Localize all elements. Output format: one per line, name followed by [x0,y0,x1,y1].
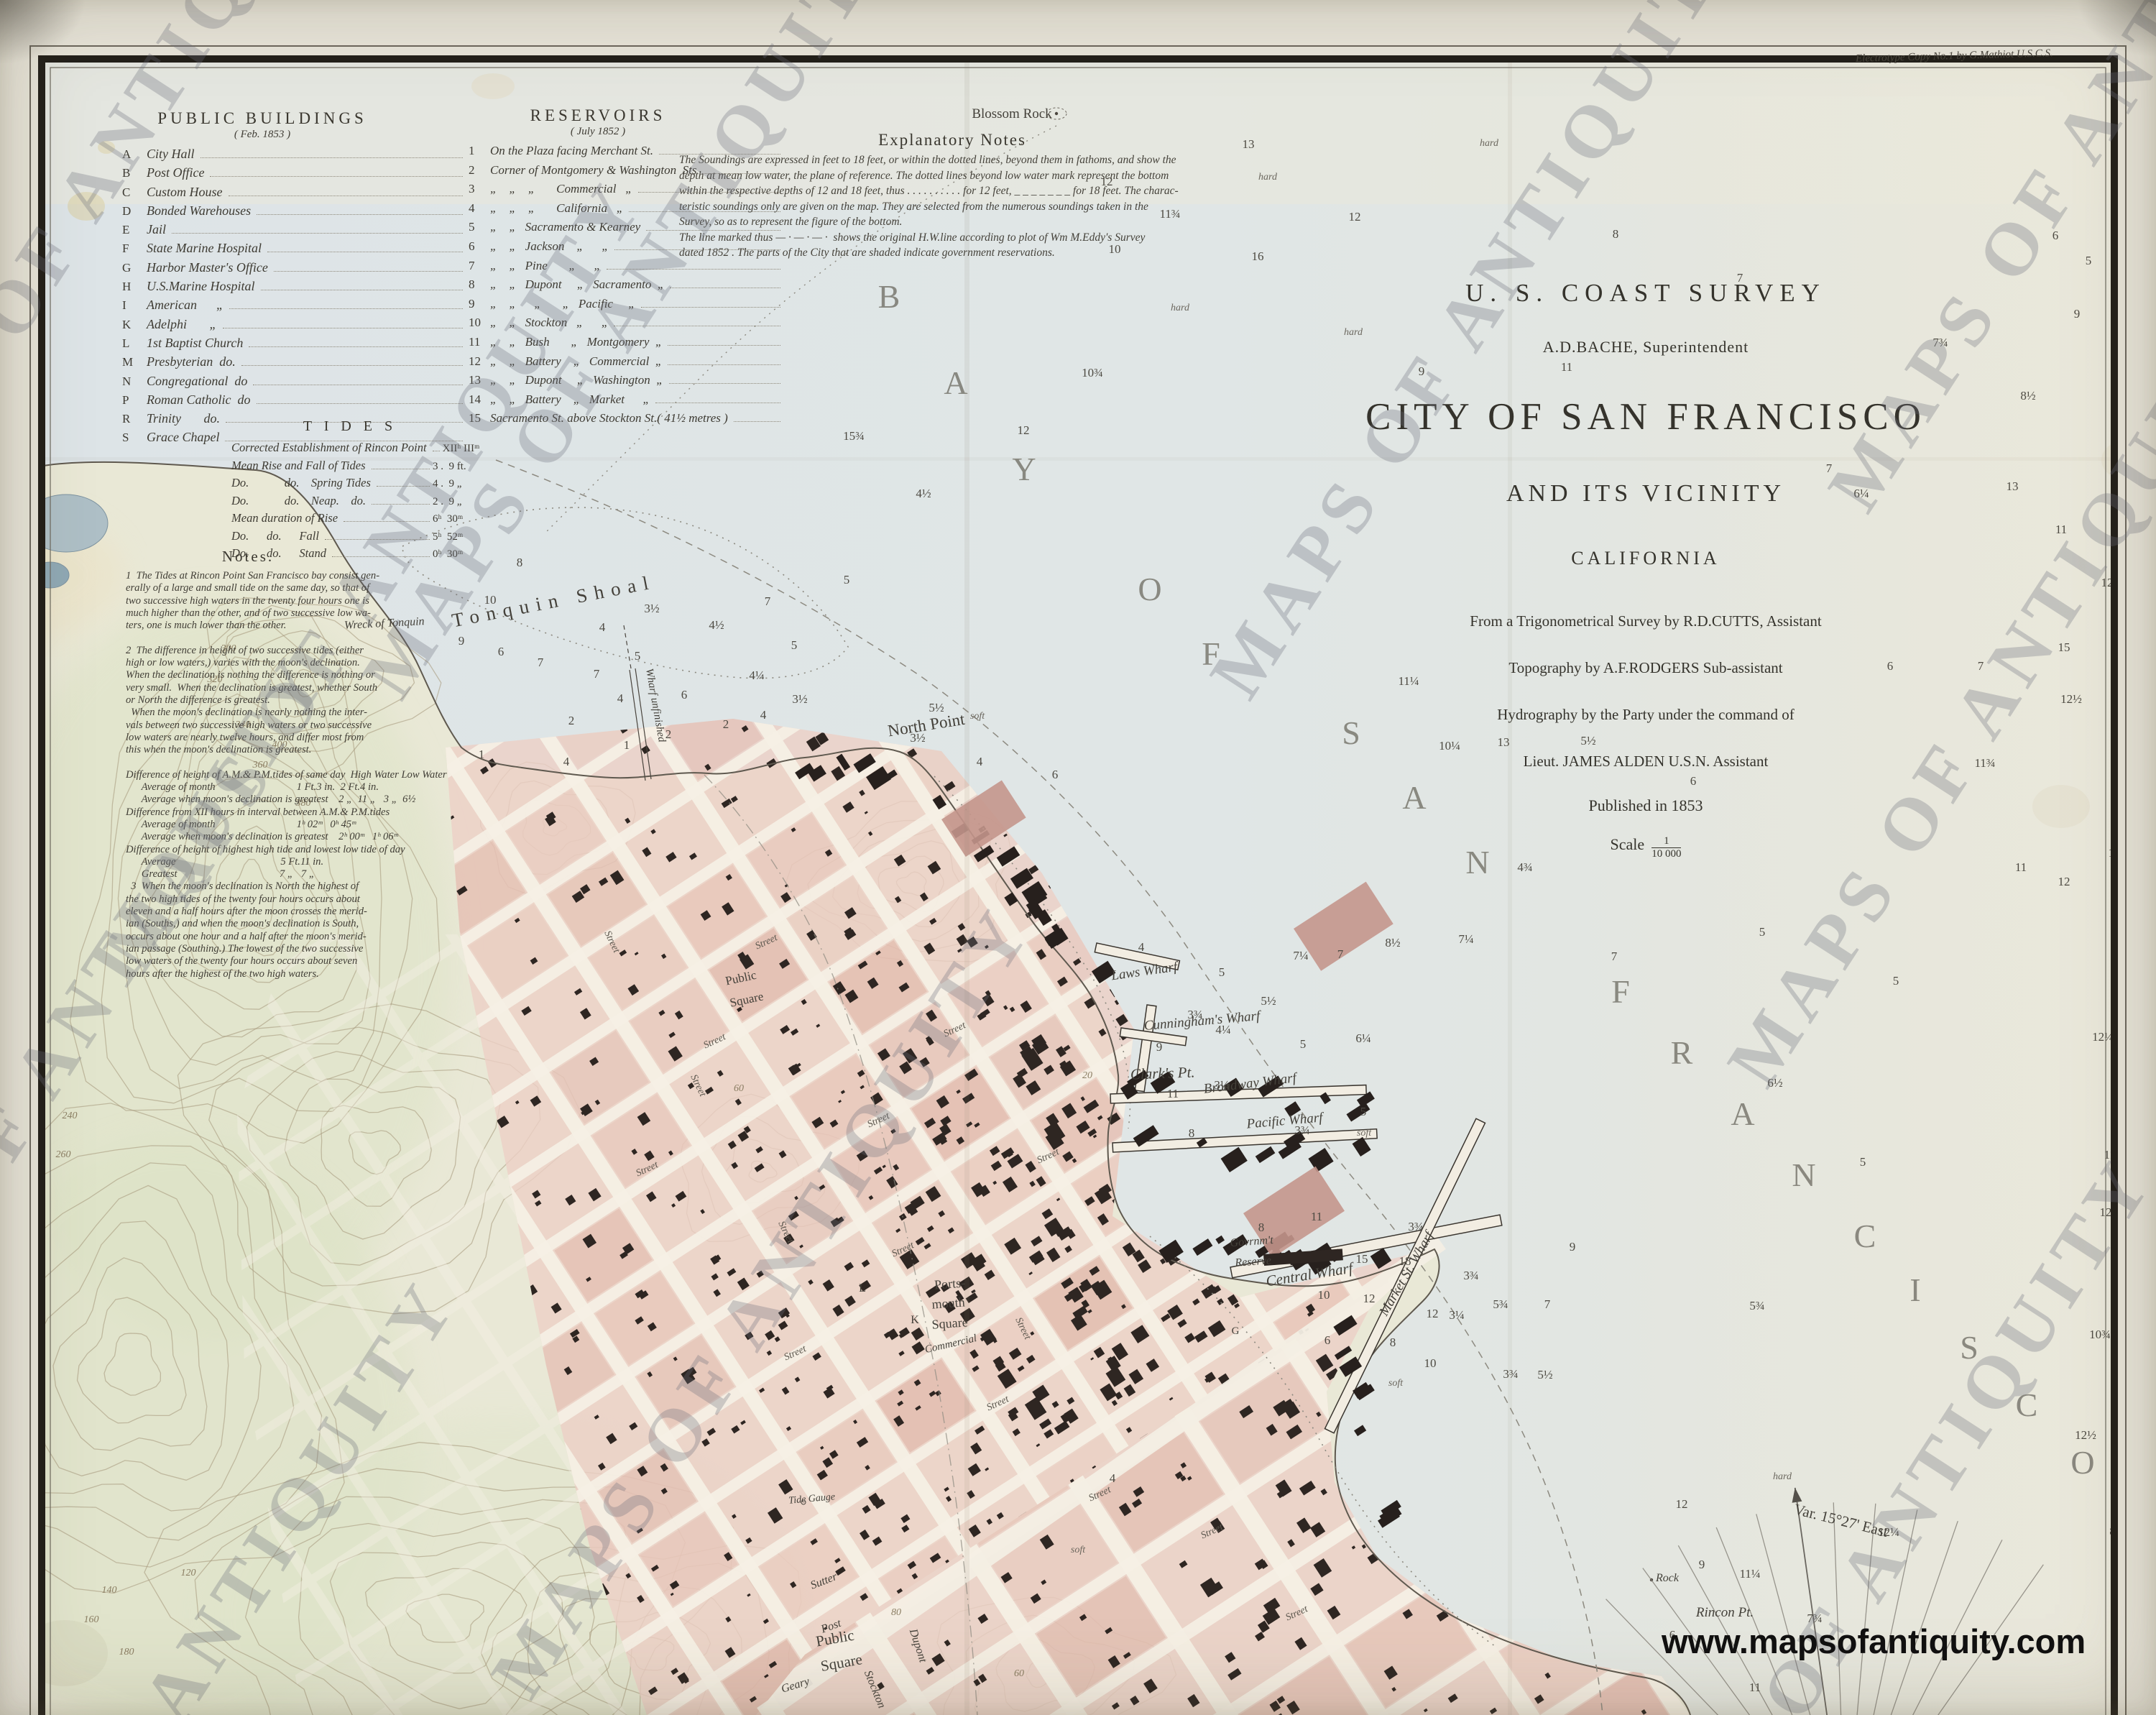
legend-text [377,486,430,487]
legend-text: City Hall [147,147,195,162]
legend-text [668,345,780,346]
legend-text: „ „ „ California „ [490,201,623,216]
legend-row: CCustom House [122,185,466,203]
legend-row: L1st Baptist Church [122,336,466,354]
sounding: 12 [1363,1292,1376,1305]
legend-text: Presbyterian do. [147,354,236,369]
sounding: 5 [2086,254,2092,267]
bay-letter: C [1854,1218,1876,1254]
sounding: 4¼ [749,668,765,682]
sounding: 7 [765,594,771,608]
legend-key: I [122,298,147,313]
legend-text: 6ʰ 30ᵐ [433,513,519,525]
published-line: Published in 1853 [1322,796,1969,815]
legend-row: GHarbor Master's Office [122,260,466,279]
place-label: Blossom Rock [972,106,1052,121]
legend-text: Post Office [147,165,204,180]
bay-letter: C [2016,1387,2038,1423]
legend-text: Trinity do. [147,411,220,426]
legend-key: G [122,261,147,275]
text-line: or North the difference is greatest. [126,694,499,707]
sounding: 11 [1311,1210,1322,1223]
legend-row: 9„ „ „ „ Pacific „ [469,297,783,316]
sounding: 6 [2053,229,2059,242]
legend-text: Congregational do [147,374,247,389]
legend-key: L [122,336,147,351]
legend-text [344,521,430,522]
legend-text [257,403,464,404]
legend-key: 7 [469,259,490,273]
legend-text [223,328,464,328]
sounding: 5¾ [1493,1297,1508,1311]
bay-letter: F [1611,973,1630,1010]
text-line: hours after the highest of the two high … [126,968,499,980]
legend-row: 11„ „ Bush „ Montgomery „ [469,335,783,354]
bay-letter: A [944,364,967,401]
legend-row: Do. do. Neap. do.2 . 9 „ [231,494,519,512]
sounding: 11 [2015,860,2027,874]
public-buildings-panel: PUBLIC BUILDINGS ( Feb. 1853 ) ACity Hal… [122,109,466,449]
reservoirs-date: ( July 1852 ) [490,126,706,138]
sounding: 5 [1360,1105,1367,1118]
sounding: 5 [1860,1155,1866,1169]
legend-text [614,326,780,326]
text-line: 3 When the moon's declination is North t… [126,881,499,893]
legend-row: 12„ „ Battery „ Commercial „ [469,354,783,374]
sounding: 12 [1676,1497,1688,1511]
legend-text: Roman Catholic do [147,392,251,408]
legend-text [372,469,430,469]
legend-text [229,196,463,196]
sounding: 11 [1749,1680,1761,1694]
legend-row: 10„ „ Stockton „ „ [469,316,783,335]
text-line: within the respective depths of 12 and 1… [679,183,1326,199]
legend-row: FState Marine Hospital [122,241,466,259]
scale-line: Scale110 000 [1322,835,1969,860]
bay-letter: Y [1012,451,1036,487]
legend-row: MPresbyterian do. [122,354,466,373]
sounding: 3½ [792,692,808,706]
legend-text: „ „ Battery „ Market „ [490,392,650,407]
contour-elevation: 140 [102,1585,117,1596]
legend-text: Corrected Establishment of Rincon Point [231,441,427,455]
legend-text: 3 . 9 ft. [433,461,519,473]
bay-letter: I [1909,1272,1920,1308]
state-line: CALIFORNIA [1322,548,1969,569]
legend-text [655,403,780,403]
contour-elevation: 20 [1082,1070,1092,1081]
legend-text [261,290,464,290]
notes-text: 1 The Tides at Rincon Point San Francisc… [126,570,499,980]
sounding: 4½ [709,618,724,632]
tides-panel: T I D E S Corrected Establishment of Rin… [231,418,519,564]
legend-text: „ „ „ Commercial „ [490,182,632,196]
text-line: The line marked thus — · — · — · shows t… [679,230,1326,246]
sounding: 8 [1613,227,1619,241]
bottom-character-label: soft [1071,1545,1086,1555]
sounding: 7¼ [1458,932,1474,946]
legend-text [274,271,463,272]
sounding: 8 [1189,1126,1195,1140]
text-line: low waters are nearly twelve hours, and … [126,732,499,744]
sounding: 5¾ [1749,1299,1764,1312]
credit-alden: Lieut. JAMES ALDEN U.S.N. Assistant [1322,753,1969,771]
legend-key: H [122,280,147,294]
legend-row: IAmerican „ [122,298,466,316]
sounding: 10 [1424,1356,1437,1370]
contour-elevation: 180 [119,1647,134,1657]
legend-key: K [122,318,147,332]
bottom-character-label: hard [1773,1471,1792,1482]
legend-row: Corrected Establishment of Rincon PointX… [231,441,519,459]
legend-key: A [122,147,147,162]
sounding: 2 [568,714,575,727]
legend-text: Do. do. Spring Tides [231,476,371,490]
legend-text [734,421,780,422]
text-line: Difference from XII hours in interval be… [126,806,499,819]
text-line: Greatest 7 „ 7 „ [126,868,499,881]
legend-key: R [122,412,147,426]
place-label: L [859,1282,866,1295]
bay-letter: B [878,278,900,315]
sounding: 12¼ [2092,1030,2114,1044]
place-label: Rincon Pt. [1695,1605,1754,1620]
public-buildings-list: ACity HallBPost OfficeCCustom HouseDBond… [122,147,466,449]
legend-text: Jail [147,222,166,237]
text-line: ian passage (Southing.) The lowest of th… [126,943,499,955]
text-line: Average of month 1ʰ 02ᵐ 0ʰ 45ᵐ [126,819,499,831]
sounding: 8½ [2020,389,2036,403]
sounding: 5 [1219,965,1225,979]
bay-letter: R [1671,1034,1693,1071]
bottom-character-label: soft [970,711,985,722]
legend-row: DBonded Warehouses [122,203,466,222]
legend-row: 7„ „ Pine „ „ [469,259,783,278]
sounding: 7 [1978,659,1984,673]
legend-row: HU.S.Marine Hospital [122,279,466,298]
legend-row: BPost Office [122,165,466,184]
place-label: Square [931,1315,968,1331]
legend-text: Mean duration of Rise [231,511,338,525]
sounding: 3½ [644,602,660,615]
legend-text: „ „ Pine „ „ [490,259,601,273]
legend-key: B [122,166,147,180]
text-line: Difference of height of A.M.& P.M.tides … [126,769,499,781]
sounding: 11 [2055,523,2067,536]
superintendent-line: A.D.BACHE, Superintendent [1322,338,1969,357]
bay-letter: A [1731,1095,1754,1132]
public-buildings-title: PUBLIC BUILDINGS [144,109,381,128]
text-line [126,632,499,644]
explanatory-notes-panel: Explanatory Notes The Soundings are expr… [679,131,1326,261]
legend-text: 5ʰ 52ᵐ [433,531,519,543]
legend-key: 12 [469,354,490,369]
legend-text: American „ [147,298,224,313]
legend-text: 4 . 9 „ [433,478,519,490]
sounding: 4½ [916,487,931,500]
legend-text: Do. do. Fall [231,529,319,543]
legend-text [267,252,463,252]
sounding: 6½ [1767,1076,1783,1090]
legend-row: 14„ „ Battery „ Market „ [469,392,783,412]
legend-key: 3 [469,182,490,196]
sounding: 9 [2074,307,2081,321]
legend-text: Corner of Montgomery & Washington Sts [490,163,696,178]
legend-key: E [122,223,147,237]
seller-url[interactable]: www.mapsofantiquity.com [1662,1622,2086,1661]
place-label: mouth [931,1295,965,1311]
sounding: 5½ [929,701,944,714]
sounding: 4 [617,691,624,705]
legend-text: State Marine Hospital [147,241,262,256]
legend-key: 1 [469,144,490,158]
sounding: 4¾ [1517,860,1532,874]
text-line: When the moon's declination is nearly no… [126,707,499,719]
text-line: teristic soundings only are given on the… [679,199,1326,215]
legend-key: S [122,431,147,445]
contour-elevation: 120 [181,1568,196,1578]
legend-text: Do. do. Neap. do. [231,494,366,508]
legend-text: „ „ Stockton „ „ [490,316,608,330]
sounding: 12½ [2075,1428,2096,1442]
sounding: 8 [1258,1220,1265,1234]
legend-row: PRoman Catholic do [122,392,466,411]
sounding: 12½ [2060,692,2082,706]
legend-key: 4 [469,201,490,216]
sounding: 10 [1318,1288,1330,1302]
legend-row: Mean duration of Rise6ʰ 30ᵐ [231,511,519,529]
text-line: very small. When the declination is grea… [126,682,499,694]
legend-row: NCongregational do [122,374,466,392]
text-line: When the declination is nothing the diff… [126,669,499,681]
sounding: 15¾ [843,429,865,443]
legend-key: C [122,185,147,200]
legend-text [253,385,463,385]
legend-text: „ „ Jackson „ „ [490,239,609,254]
text-line: occurs about one hour and a half after t… [126,931,499,943]
legend-text [433,451,440,451]
legend-key: 11 [469,335,490,349]
sounding: 12 [1018,423,1030,437]
text-line: dated 1852 . The parts of the City that … [679,245,1326,261]
sounding: 10¾ [1082,366,1103,380]
sounding: 13 [2007,479,2019,493]
sounding: 5½ [1537,1368,1553,1381]
legend-key: N [122,374,147,389]
explanatory-text: The Soundings are expressed in feet to 1… [679,152,1326,261]
bottom-character-label: hard [1171,303,1190,313]
legend-text: Harbor Master's Office [147,260,268,275]
sounding: 7¼ [1293,949,1309,962]
place-label: Clark's Pt. [1130,1063,1195,1082]
legend-key: 14 [469,392,490,407]
legend-text: „ „ Sacramento & Kearney [490,220,640,234]
place-label: Rock [1655,1572,1680,1584]
sounding: 7 [1611,950,1618,963]
legend-row: Do. do. Fall5ʰ 52ᵐ [231,529,519,547]
place-label: G [1232,1325,1240,1337]
text-line: this when the moon's declination is grea… [126,744,499,756]
legend-text [249,346,463,347]
bay-letter: S [1960,1329,1978,1366]
sounding: 4 [1138,940,1145,954]
sounding: 15 [2058,640,2070,654]
text-line: eleven and a half hours after the moon c… [126,906,499,918]
sounding: 7 [594,667,600,681]
place-label: K [911,1314,919,1326]
legend-text [210,176,463,177]
legend-text: 1st Baptist Church [147,336,243,351]
legend-text: U.S.Marine Hospital [147,279,255,294]
bottom-character-label: soft [1388,1378,1404,1389]
legend-key: 8 [469,277,490,292]
text-line: Survey, so as to represent the figure of… [679,214,1326,230]
text-line: Average 5 Ft.11 in. [126,856,499,868]
legend-text: Grace Chapel [147,430,219,445]
legend-text: 2 . 9 „ [433,496,519,508]
legend-text: Sacramento St. above Stockton St.( 41½ m… [490,411,728,426]
sounding: 9 [1570,1240,1576,1254]
legend-key: 5 [469,220,490,234]
sounding: 7 [1544,1297,1551,1311]
legend-text: Custom House [147,185,223,200]
legend-key: 9 [469,297,490,311]
legend-key: 13 [469,373,490,387]
tides-table: Corrected Establishment of Rincon PointX… [231,441,519,564]
sounding: 4 [977,755,983,768]
sounding: 5½ [1261,994,1276,1008]
sounding: 4 [760,708,767,722]
sounding: 4 [1110,1471,1116,1485]
sounding: 15 [1356,1252,1368,1266]
sounding: 6¼ [1355,1031,1371,1045]
sounding: 6 [681,688,688,702]
sounding: 11¼ [1739,1567,1760,1581]
sounding: 3¼ [1449,1308,1465,1322]
credit-survey: From a Trigonometrical Survey by R.D.CUT… [1322,612,1969,630]
legend-text: „ „ Battery „ Commercial „ [490,354,662,369]
sounding: 9 [1699,1558,1705,1571]
sounding: 11 [1167,1087,1179,1100]
title-block: U. S. COAST SURVEY A.D.BACHE, Superinten… [1322,279,1969,860]
text-line: vals between two successive high waters … [126,719,499,732]
map-subtitle: AND ITS VICINITY [1322,480,1969,507]
legend-key: 10 [469,316,490,330]
legend-row: ACity Hall [122,147,466,165]
text-line: ian (Souths,) and when the moon's declin… [126,918,499,930]
legend-key: F [122,242,147,256]
sounding: 5 [791,638,798,652]
place-label: Ports- [934,1276,965,1292]
sounding: 6 [1325,1333,1331,1347]
bay-letter: O [2070,1444,2094,1481]
text-line: low waters of the twenty four hours occu… [126,955,499,967]
sounding: 12 [1349,210,1361,224]
text-line: Average of month 1 Ft.3 in. 2 Ft.4 in. [126,781,499,794]
contour-elevation: 60 [1014,1668,1024,1679]
legend-key: M [122,355,147,369]
legend-text: XIIʰ IIIᵐ [443,443,529,455]
legend-key: D [122,204,147,219]
sounding: 9 [1156,1040,1163,1054]
legend-text [641,307,780,308]
text-line: erally of a large and small tide on the … [126,582,499,594]
sounding: 6 [1052,768,1059,781]
legend-text: „ „ Dupont „ Sacramento „ [490,277,664,292]
text-line: 1 The Tides at Rincon Point San Francisc… [126,570,499,582]
legend-row: Do. do. Spring Tides4 . 9 „ [231,476,519,494]
sounding: 3¾ [1408,1220,1423,1233]
legend-text [669,383,780,384]
sounding: 5 [635,649,641,663]
legend-key: P [122,393,147,408]
contour-elevation: 160 [84,1614,99,1625]
notes-title: Notes. [126,548,370,566]
legend-row: 13„ „ Dupont „ Washington „ [469,373,783,392]
legend-text [372,504,430,505]
legend-text [607,269,780,270]
bay-letter: O [1138,571,1161,607]
bottom-character-label: soft [1357,1128,1372,1139]
sounding: 5 [1893,974,1899,988]
bay-letter: F [1202,635,1220,672]
reservoirs-title: RESERVOIRS [490,106,706,125]
sounding: 8 [1390,1335,1396,1349]
text-line: ters, one is much lower than the other. [126,620,499,632]
sounding: 4 [599,620,606,634]
legend-key: 6 [469,239,490,254]
sounding: 8½ [1385,936,1401,950]
sounding: 7 [538,656,544,669]
sounding: 5 [844,573,850,587]
text-line: 2 The difference in height of two succes… [126,645,499,657]
legend-text [201,157,464,158]
legend-row: 8„ „ Dupont „ Sacramento „ [469,277,783,297]
legend-text [241,365,463,366]
text-line: Average when moon's declination is great… [126,794,499,806]
legend-text [325,539,430,540]
text-line: depth at mean low water, the plane of re… [679,168,1326,184]
legend-row: KAdelphi „ [122,317,466,336]
legend-text: On the Plaza facing Merchant St. [490,144,653,158]
notes-panel: Notes. 1 The Tides at Rincon Point San F… [126,548,499,980]
text-line: the two high tides of the twenty four ho… [126,893,499,906]
legend-text: Adelphi „ [147,317,217,332]
credit-hydrography: Hydrography by the Party under the comma… [1322,706,1969,724]
bay-letter: N [1792,1157,1815,1193]
text-line: Average when moon's declination is great… [126,831,499,843]
sounding: 1 [624,738,630,752]
contour-elevation: 260 [56,1149,71,1160]
legend-text: „ „ Dupont „ Washington „ [490,373,663,387]
legend-text: „ „ Bush „ Montgomery „ [490,335,662,349]
antique-map-sheet: BAYOFSANFRANCISCO 1213hardhard11¾1210168… [0,0,2156,1715]
text-line: two successive high waters in the twenty… [126,595,499,607]
place-label: Reserve [1234,1254,1272,1269]
survey-title: U. S. COAST SURVEY [1322,279,1969,308]
legend-text: „ „ „ „ Pacific „ [490,297,635,311]
text-line: much higher than the other, and of two s… [126,607,499,620]
contour-elevation: 60 [734,1083,744,1094]
bottom-character-label: hard [1480,138,1499,149]
credit-topography: Topography by A.F.RODGERS Sub-assistant [1322,659,1969,677]
legend-text: Mean Rise and Fall of Tides [231,459,366,473]
legend-text [670,288,780,288]
legend-row: EJail [122,222,466,241]
sounding: 3¾ [1463,1269,1478,1282]
text-line: Difference of height of highest high tid… [126,844,499,856]
sounding: 2 [723,717,729,731]
